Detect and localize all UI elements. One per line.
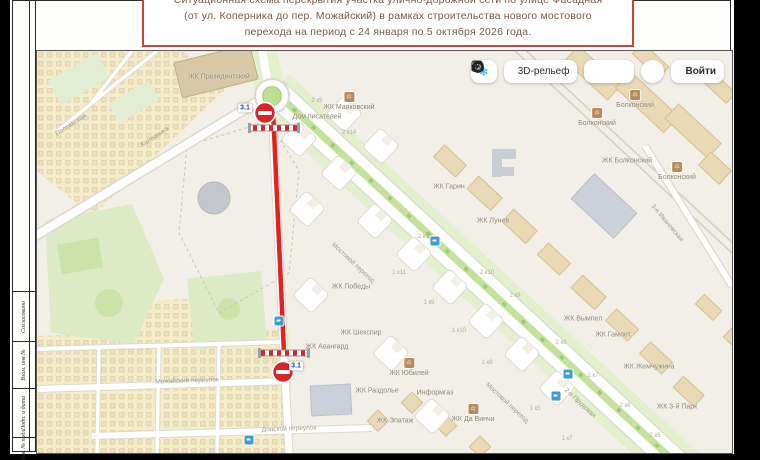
map-toolbar: ❄ 3D-рельеф P (471, 60, 724, 83)
login-label: Войти (685, 66, 716, 77)
login-button[interactable]: Войти (671, 60, 724, 83)
title-line-3: перехода на период с 24 января по 5 октя… (152, 25, 624, 41)
relief-3d-label: 3D-рельеф (518, 66, 570, 77)
stamp-cell: Инв. № подл. (12, 437, 35, 452)
stamp-cell: Взам. инв № (12, 341, 35, 388)
panorama-button[interactable] (641, 60, 664, 83)
layers-button-group[interactable]: P (584, 60, 634, 83)
title-line-2: (от ул. Коперника до пер. Можайский) в р… (152, 9, 624, 25)
tank-structure (198, 182, 230, 214)
title-block-column: СогласованоВзам. инв №Подп. и датаИнв. №… (12, 0, 36, 452)
no-entry-sign-bottom (273, 362, 294, 383)
map-graphics (37, 51, 732, 453)
relief-3d-button[interactable]: 3D-рельеф (504, 60, 578, 83)
no-entry-sign-top (255, 103, 276, 124)
document-page: СогласованоВзам. инв №Подп. и датаИнв. №… (10, 0, 734, 454)
drawing-sheet: СогласованоВзам. инв №Подп. и датаИнв. №… (0, 0, 760, 460)
stamp-cell: Согласовано (12, 291, 35, 341)
title-line-1: Ситуационная схема перекрытия участка ул… (152, 0, 624, 9)
scheme-title-box: Ситуационная схема перекрытия участка ул… (142, 0, 634, 47)
map-canvas[interactable]: КоперникаПолтавскаяМожайский переулокДон… (36, 50, 733, 454)
